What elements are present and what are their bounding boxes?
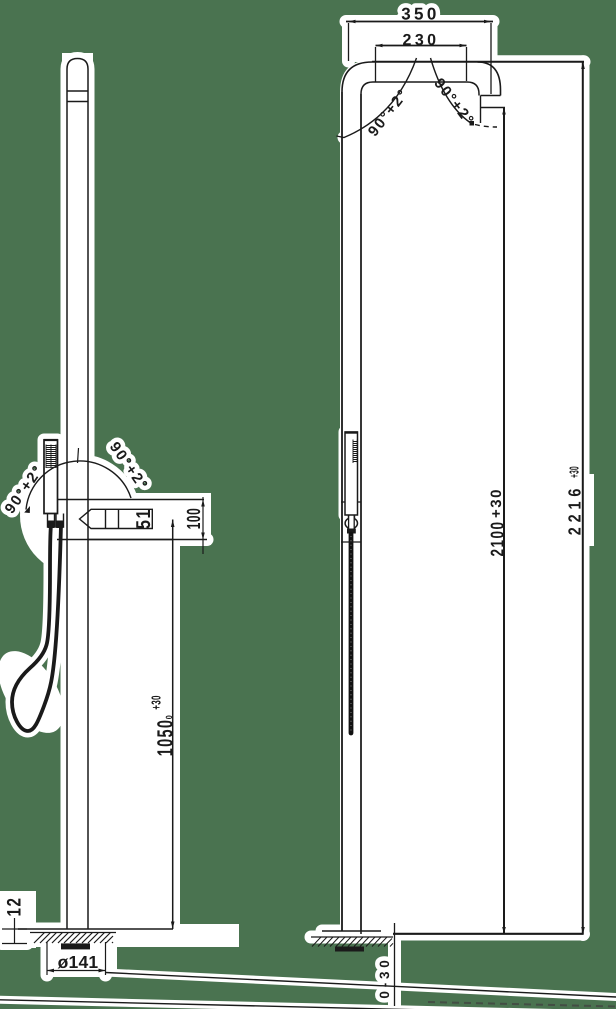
svg-text:100: 100: [184, 508, 205, 530]
svg-text:2100: 2100: [487, 521, 508, 557]
svg-text:+30: +30: [148, 695, 163, 710]
svg-text:51: 51: [133, 508, 155, 529]
svg-text:230: 230: [403, 32, 440, 49]
svg-text:350: 350: [401, 5, 440, 24]
svg-text:+30: +30: [488, 488, 505, 518]
svg-text:0: 0: [164, 715, 174, 719]
svg-text:+30: +30: [567, 466, 582, 478]
svg-text:12: 12: [4, 896, 26, 916]
svg-text:1050: 1050: [153, 719, 178, 757]
svg-text:ø141: ø141: [58, 952, 99, 972]
svg-text:2216: 2216: [565, 484, 585, 536]
svg-text:0-30: 0-30: [377, 956, 392, 998]
